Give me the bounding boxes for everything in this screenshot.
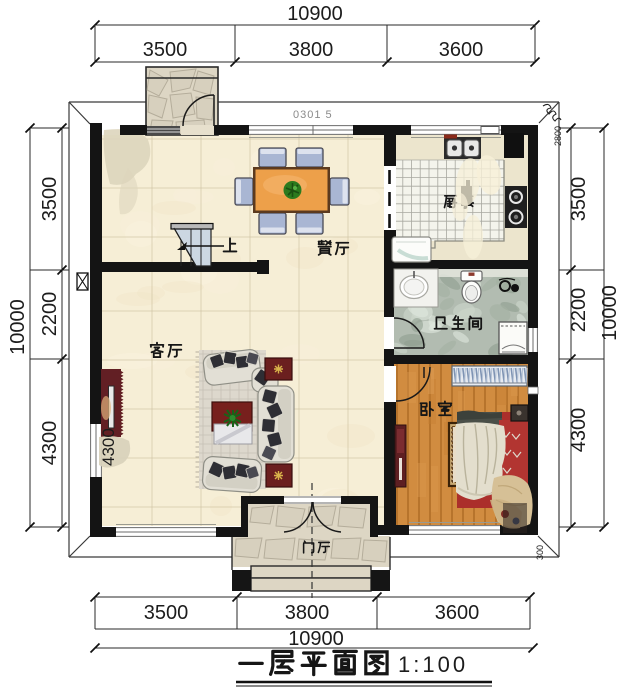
svg-text:10900: 10900 bbox=[288, 628, 344, 650]
svg-text:4300: 4300 bbox=[99, 428, 118, 466]
svg-text:3500: 3500 bbox=[143, 39, 188, 61]
svg-text:2200: 2200 bbox=[568, 288, 590, 333]
svg-text:3500: 3500 bbox=[39, 177, 61, 222]
svg-text:10000: 10000 bbox=[599, 285, 621, 341]
svg-text:10000: 10000 bbox=[7, 299, 29, 355]
svg-text:2800: 2800 bbox=[553, 126, 563, 146]
svg-text:300: 300 bbox=[535, 545, 545, 560]
svg-text:3500: 3500 bbox=[568, 177, 590, 222]
svg-text:3600: 3600 bbox=[439, 39, 484, 61]
svg-text:0301 5: 0301 5 bbox=[293, 109, 333, 121]
svg-text:4300: 4300 bbox=[39, 421, 61, 466]
svg-text:3500: 3500 bbox=[144, 602, 189, 624]
svg-text:10900: 10900 bbox=[287, 3, 343, 25]
svg-text:2200: 2200 bbox=[39, 292, 61, 337]
svg-text:4300: 4300 bbox=[568, 408, 590, 453]
svg-text:3600: 3600 bbox=[435, 602, 480, 624]
svg-text:1:100: 1:100 bbox=[398, 652, 468, 677]
svg-text:3800: 3800 bbox=[289, 39, 334, 61]
svg-text:3800: 3800 bbox=[285, 602, 330, 624]
